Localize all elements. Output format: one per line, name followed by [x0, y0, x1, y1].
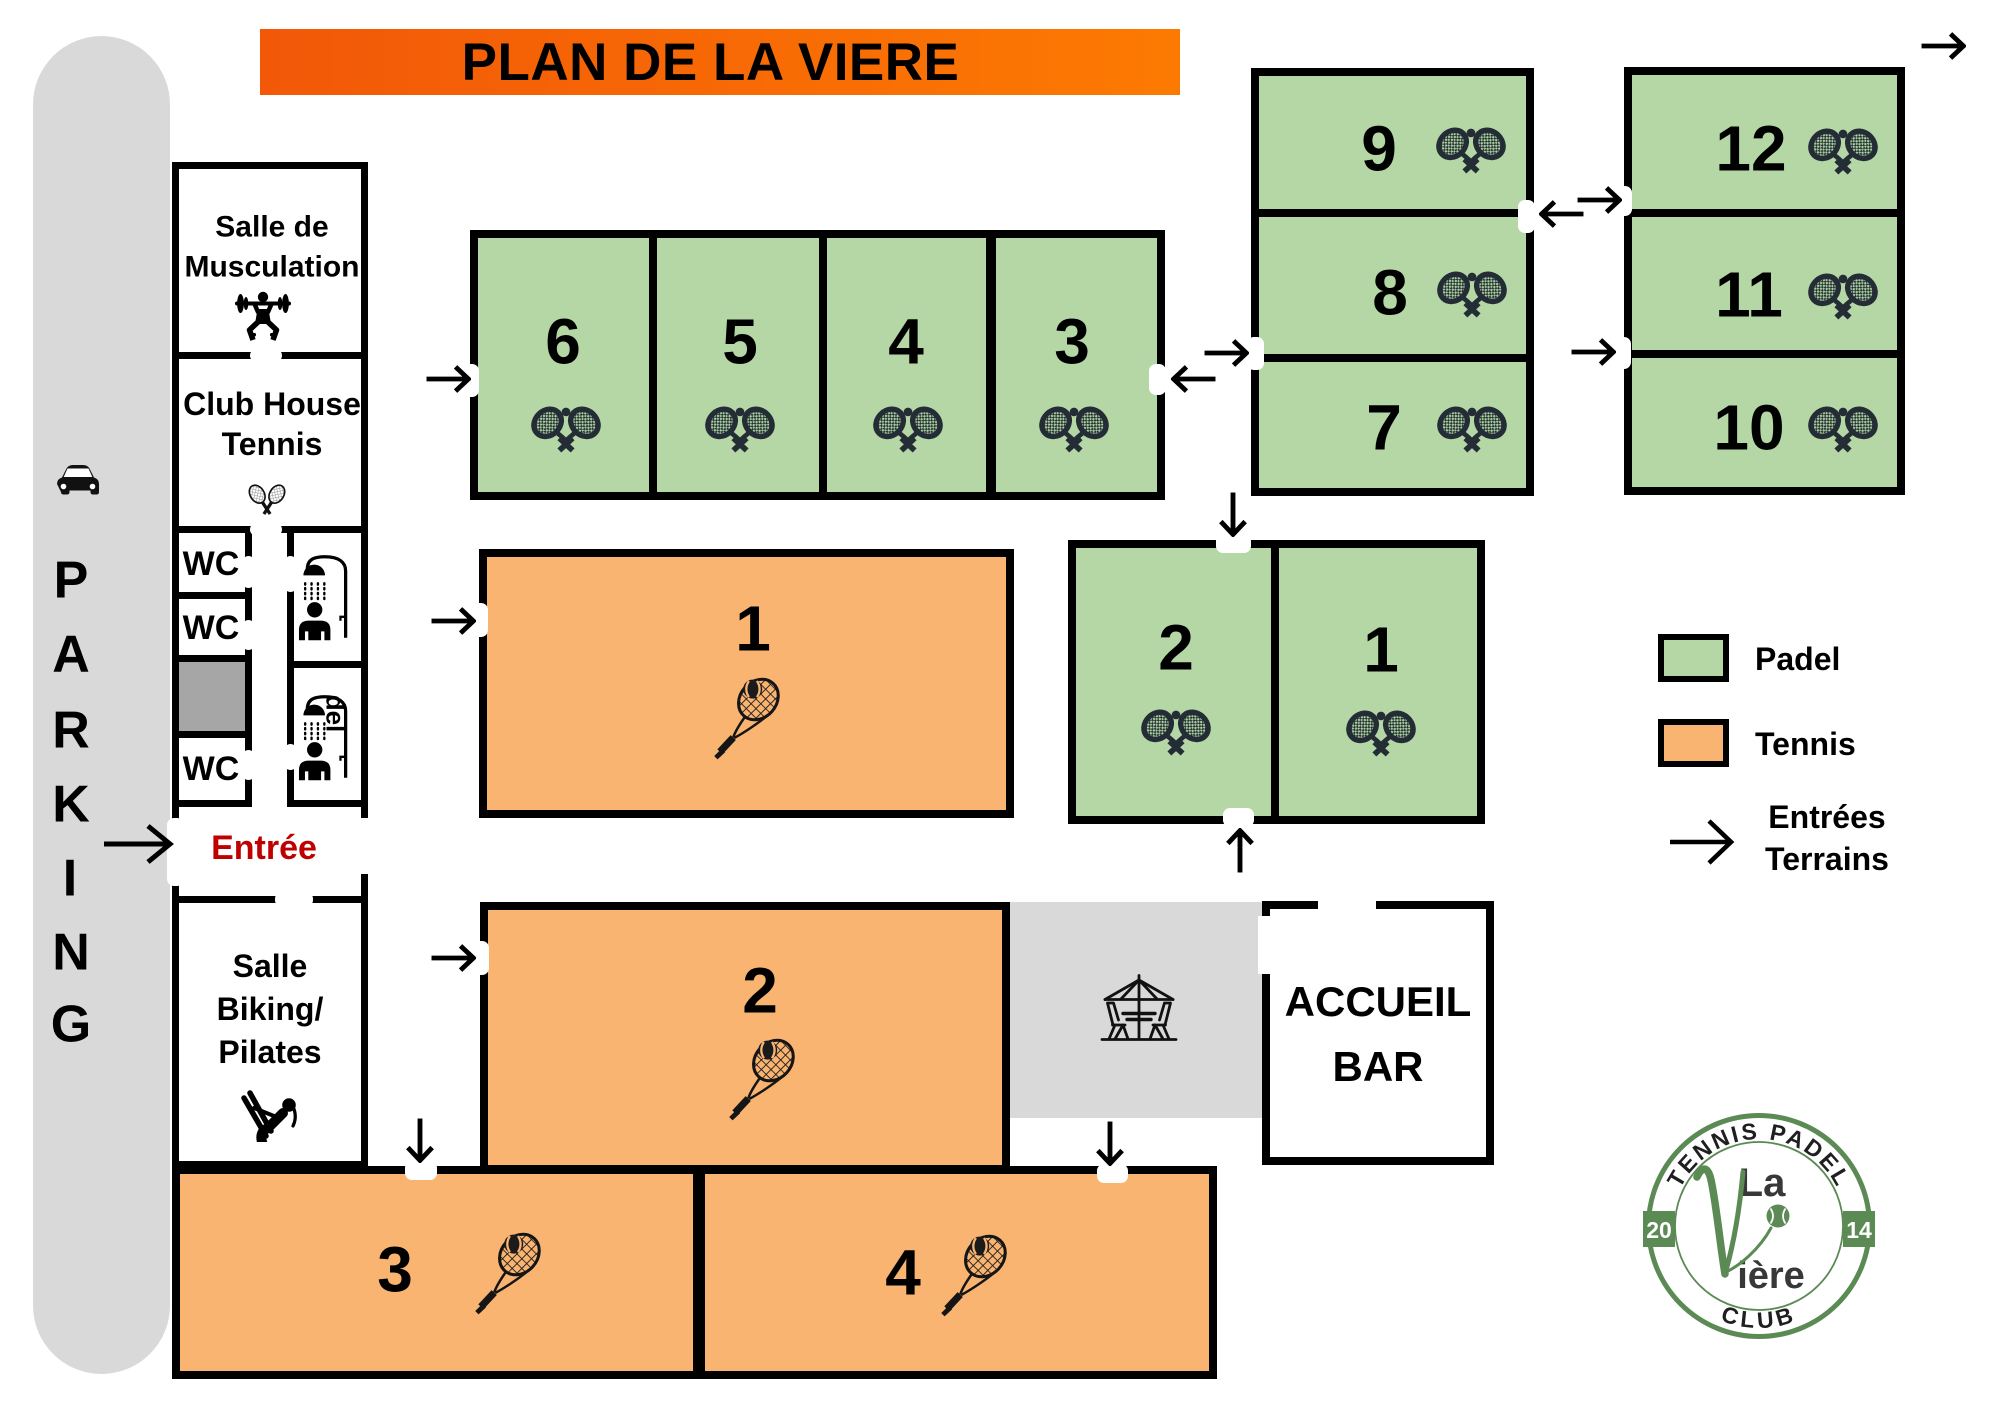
svg-text:20: 20 [1646, 1217, 1672, 1243]
svg-text:ière: ière [1737, 1255, 1805, 1297]
svg-text:14: 14 [1846, 1217, 1872, 1243]
svg-text:La: La [1739, 1161, 1786, 1205]
